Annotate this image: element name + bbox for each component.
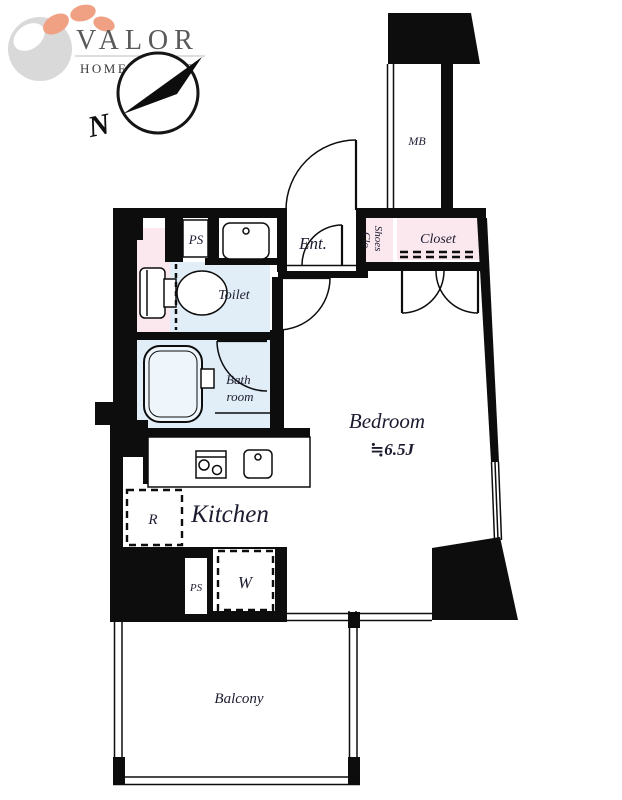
bedroom-side-window	[495, 462, 498, 540]
logo-petal-icon	[68, 2, 97, 24]
bedroom-door-arc	[278, 278, 330, 330]
entrance-door-arc	[286, 140, 356, 210]
floor-plan: VALOR HOME ADVISE N	[0, 0, 622, 800]
stove-burner-icon	[213, 466, 222, 475]
bathtub-icon	[144, 346, 202, 422]
hall-left-wall	[272, 277, 283, 330]
toilet-seat-icon	[164, 279, 176, 307]
toilet-bath-wall	[137, 332, 284, 340]
logo-title: VALOR	[76, 25, 199, 56]
entrance-label: Ent.	[298, 234, 327, 253]
bath-bottom-wall	[135, 428, 310, 437]
balcony-label: Balcony	[214, 691, 263, 707]
stove-burner-icon	[199, 460, 209, 470]
kitchen-left-notch	[123, 457, 143, 484]
right-slant-wall	[477, 218, 499, 462]
mb-label: MB	[407, 134, 426, 148]
shoes-closet-bottom-wall	[356, 262, 483, 271]
bedroom-label: Bedroom	[349, 409, 425, 433]
bedroom-side-window	[492, 462, 495, 540]
wall-right-of-ps	[208, 218, 219, 262]
kitchen-left-wall	[110, 484, 123, 547]
closet-door-left-arc	[402, 271, 444, 313]
bedroom-side-window	[499, 462, 502, 540]
left-wall-upper	[113, 208, 137, 420]
mb-right-wall	[441, 64, 453, 218]
bathtub-counter	[201, 369, 214, 388]
compass-north-label: N	[84, 107, 114, 144]
bedroom-pillar	[432, 537, 518, 620]
refrigerator-label: R	[147, 512, 157, 528]
toilet-tank-icon	[140, 268, 165, 318]
ps-bottom-label: PS	[189, 582, 203, 594]
kitchen-sink-faucet-icon	[255, 454, 261, 460]
toilet-label: Toilet	[218, 288, 250, 303]
wall-left-of-ps	[165, 218, 183, 262]
closet-label: Closet	[420, 232, 457, 247]
kitchen-counter	[148, 437, 310, 487]
kitchen-label: Kitchen	[190, 501, 269, 528]
mb-top-block	[388, 13, 480, 64]
bath-right-wall	[270, 330, 284, 437]
ps-top-label: PS	[188, 232, 204, 247]
bedroom-size-label: ≒6.5J	[370, 440, 414, 459]
closet-door-right-arc	[436, 271, 478, 313]
top-wall-right	[356, 208, 486, 218]
washbasin-faucet-icon	[243, 228, 249, 234]
washer-label: W	[238, 573, 254, 592]
